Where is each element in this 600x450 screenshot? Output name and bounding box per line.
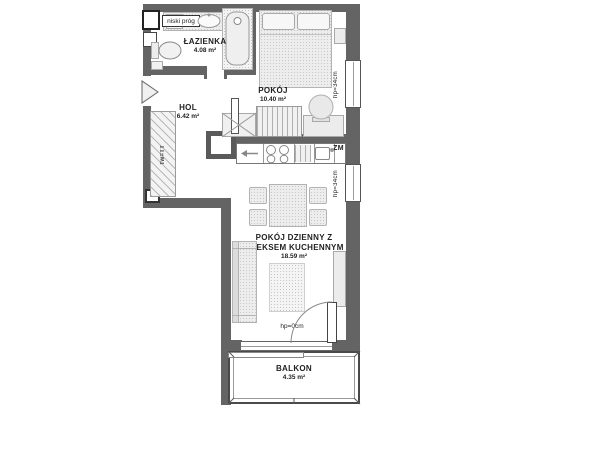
window-pane <box>353 62 354 106</box>
rug <box>269 263 305 312</box>
dishwasher-label: ZM <box>331 145 346 154</box>
blanket-line <box>259 34 332 35</box>
bathroom-label: ŁAZIENKA 4.08 m² <box>170 37 240 55</box>
sofa-armrest <box>233 315 256 322</box>
room-area: 10.40 m² <box>243 96 303 104</box>
kitchen-sink <box>315 147 330 160</box>
drainer <box>295 145 311 162</box>
sofa <box>232 241 257 323</box>
sofa-armrest <box>233 242 256 249</box>
dining-chair <box>309 209 327 226</box>
balcony-door-leaf <box>327 302 337 343</box>
sofa-back <box>233 242 239 322</box>
dining-chair <box>309 187 327 204</box>
hall-label: HOL 6.42 m² <box>163 103 213 121</box>
bathroom-fixture <box>151 61 163 70</box>
entrance-triangle-icon <box>142 81 158 103</box>
tv-cabinet <box>333 251 346 307</box>
hall-wardrobe-label: Tw=TT <box>160 130 166 180</box>
toilet-tank <box>151 42 159 59</box>
room-name: BALKON <box>244 364 344 374</box>
threshold-line <box>241 346 332 347</box>
balcony-door-threshold <box>240 341 333 351</box>
dining-chair <box>249 209 267 226</box>
pillow <box>297 13 330 30</box>
room-area: 6.42 m² <box>163 113 213 121</box>
balcony-sill <box>228 352 304 358</box>
chair-back <box>312 117 330 122</box>
balcony-label: BALKON 4.35 m² <box>244 364 344 382</box>
utility-shaft <box>142 10 160 30</box>
room-area: 4.35 m² <box>244 374 344 382</box>
hall-wardrobe: Tw=TT <box>150 111 176 197</box>
shoe-cabinet <box>222 113 256 137</box>
room-area: 4.08 m² <box>170 47 240 55</box>
floor-plan: hp=34cm hp=34cm niski próg ŁAZIENKA 4.08… <box>0 0 600 450</box>
living-window-sill-label: hp=34cm <box>333 164 339 204</box>
door-frame-tick <box>204 66 207 79</box>
bedroom-door-leaf <box>231 98 239 134</box>
dining-chair <box>249 187 267 204</box>
window-pane <box>353 166 354 200</box>
bedroom-window-sill-label: hp=34cm <box>333 62 339 108</box>
dining-table <box>269 184 307 227</box>
nightstand <box>334 28 346 44</box>
bedroom-label: POKÓJ 10.40 m² <box>243 86 303 104</box>
balcony-door-sill-label: hp=0cm <box>262 323 322 331</box>
room-name: HOL <box>163 103 213 113</box>
room-name: ŁAZIENKA <box>170 37 240 47</box>
low-threshold-label: niski próg <box>162 15 200 27</box>
room-name: POKÓJ <box>243 86 303 96</box>
bedroom-wardrobe <box>256 106 302 137</box>
pillow <box>262 13 295 30</box>
bedroom-window <box>345 60 361 108</box>
counter-divider <box>263 144 264 163</box>
living-window <box>345 164 361 202</box>
